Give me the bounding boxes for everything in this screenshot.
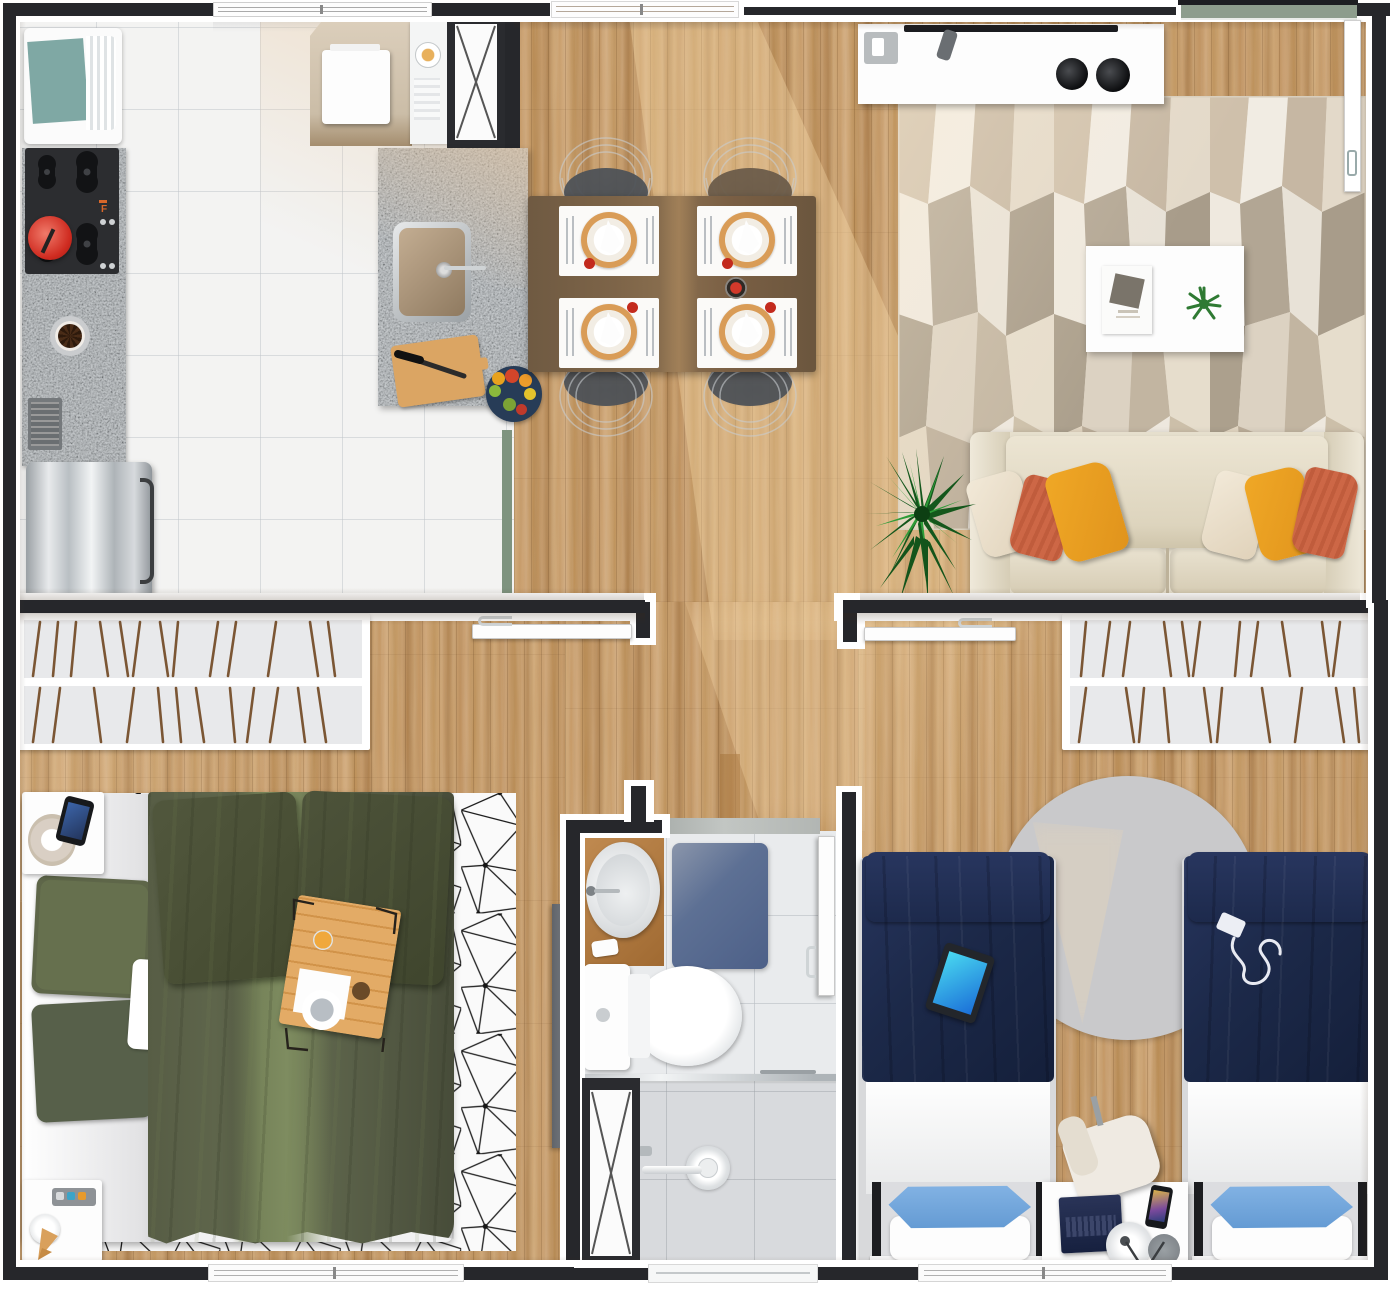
svg-text:F: F bbox=[101, 204, 107, 215]
